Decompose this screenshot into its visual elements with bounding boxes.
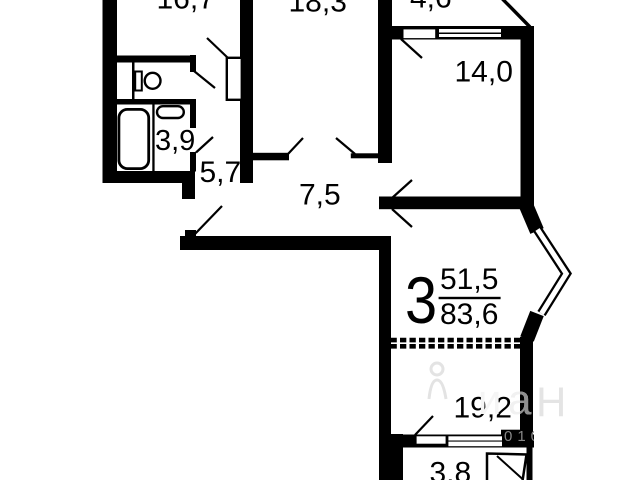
svg-text:51,5: 51,5 (440, 263, 498, 296)
svg-text:3,8: 3,8 (430, 457, 472, 480)
svg-text:и: и (478, 376, 501, 423)
svg-text:7,5: 7,5 (299, 179, 341, 212)
svg-text:14,0: 14,0 (455, 56, 513, 89)
svg-text:16,7: 16,7 (157, 0, 215, 16)
svg-text:3: 3 (405, 264, 437, 337)
svg-text:4,6: 4,6 (410, 0, 452, 15)
svg-text:Н: Н (536, 379, 566, 426)
svg-text:5,7: 5,7 (200, 156, 242, 189)
svg-text:3,9: 3,9 (155, 125, 195, 157)
svg-text:83,6: 83,6 (440, 298, 498, 331)
svg-text:18,3: 18,3 (289, 0, 347, 19)
